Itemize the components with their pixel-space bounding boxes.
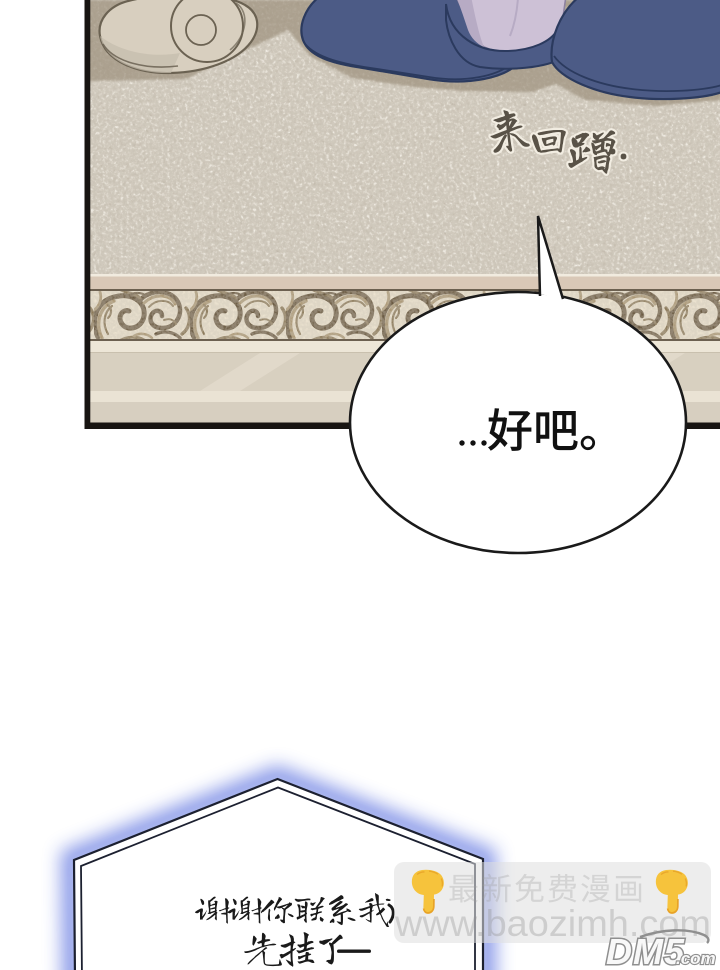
svg-text:.com: .com <box>676 949 716 968</box>
svg-text:DM5: DM5 <box>606 931 685 970</box>
